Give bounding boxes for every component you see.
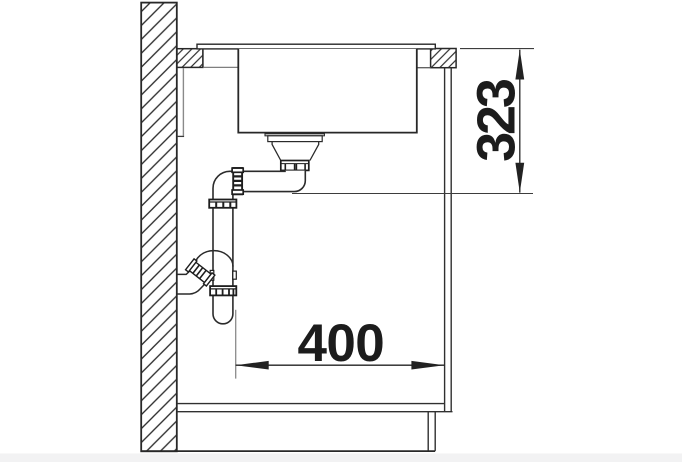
svg-text:400: 400 [297,314,384,373]
svg-text:323: 323 [466,79,526,162]
